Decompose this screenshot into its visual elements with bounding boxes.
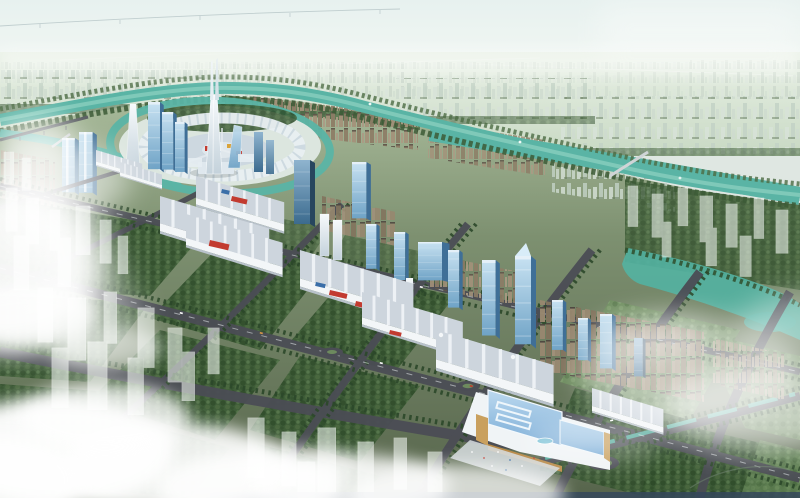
cloud <box>53 326 163 370</box>
glass-slab <box>418 242 450 282</box>
aerial-city-render <box>0 0 800 498</box>
glass-tower-tall <box>515 256 536 348</box>
glass-tower <box>482 260 500 339</box>
boat <box>369 103 372 106</box>
cbd-glass-tower <box>175 122 188 174</box>
hall-corner-dome <box>511 355 515 359</box>
boat <box>519 141 522 144</box>
spire-highlight <box>213 95 214 174</box>
cloud <box>590 315 710 365</box>
hall-corner-dome <box>439 333 443 337</box>
white-tower <box>333 220 342 260</box>
top-right-haze <box>600 0 800 60</box>
cbd-glass-tower <box>162 112 177 172</box>
aerial-city-rendering <box>0 0 800 498</box>
podium-building <box>188 158 202 167</box>
podium-building <box>238 154 254 162</box>
cbd-dark-tower <box>254 132 263 172</box>
cloud-wisp <box>525 422 665 458</box>
cbd-glass-tower <box>148 102 164 172</box>
glass-tower <box>352 162 371 221</box>
cloud <box>240 446 360 490</box>
glass-tower <box>448 250 463 310</box>
glass-tower <box>366 224 380 271</box>
cbd-dark-tower <box>266 140 274 174</box>
glass-tower <box>552 300 566 352</box>
cloud <box>20 383 190 453</box>
white-tower <box>320 214 329 256</box>
glass-tower <box>394 232 409 282</box>
roundabout-green <box>327 350 337 354</box>
boat <box>679 177 682 180</box>
glass-tower <box>294 160 315 227</box>
